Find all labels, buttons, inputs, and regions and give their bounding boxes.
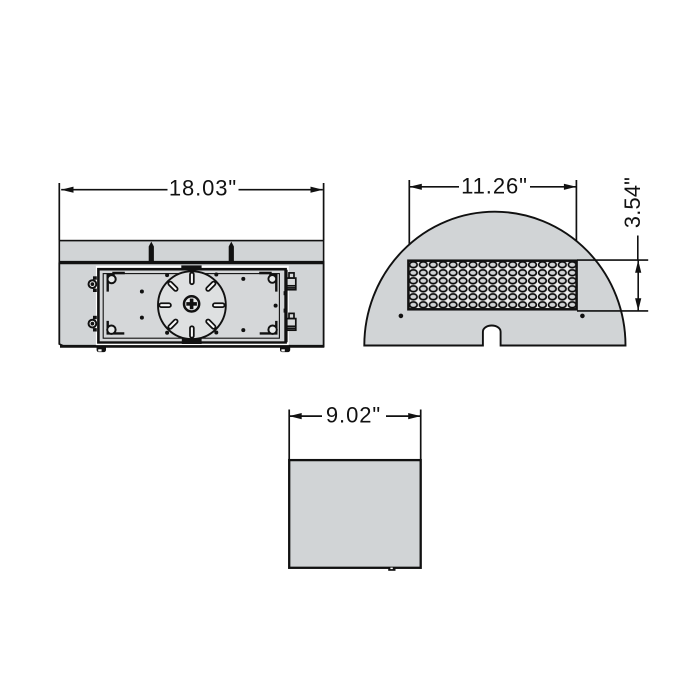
svg-text:11.26": 11.26" [461,174,528,199]
svg-text:3.54": 3.54" [620,177,645,228]
svg-text:18.03": 18.03" [169,175,237,200]
svg-text:9.02": 9.02" [326,403,381,428]
